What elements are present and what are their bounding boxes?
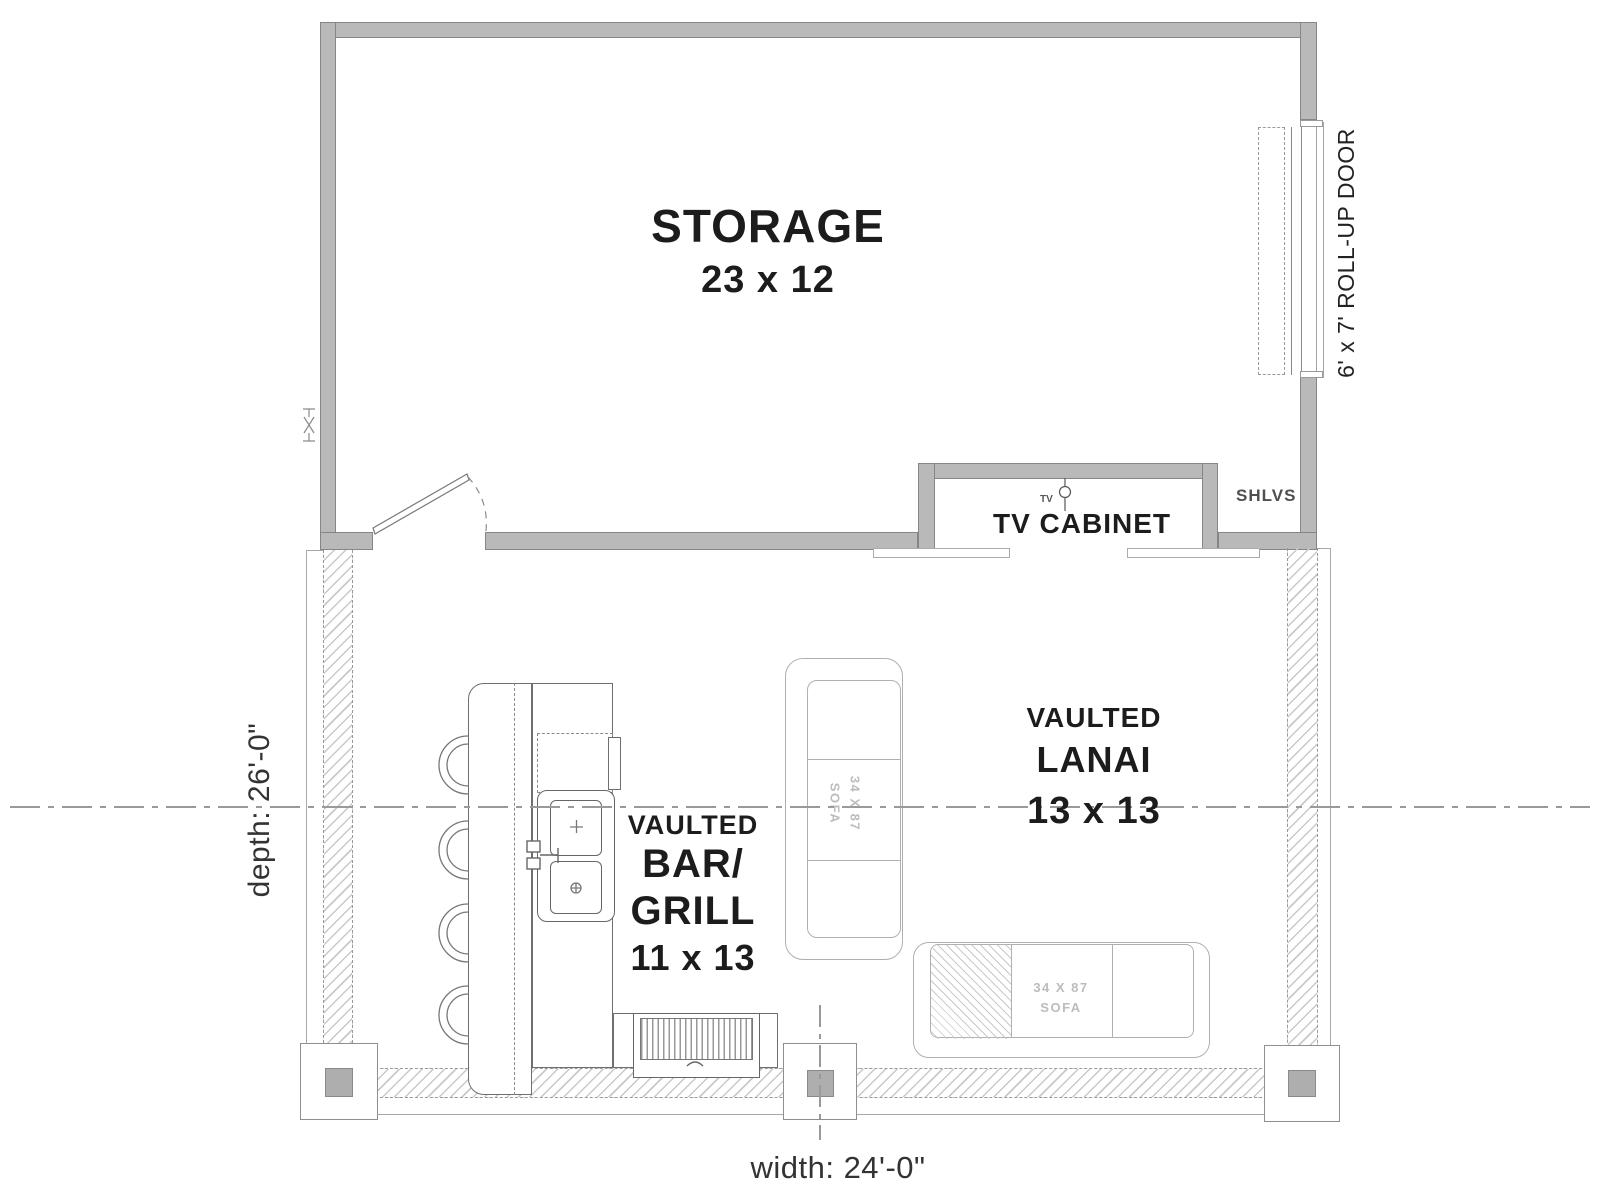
tv-outlet-icon — [1060, 478, 1071, 511]
bar-stool — [439, 821, 468, 879]
bar-grill-room-label: VAULTED BAR/ GRILL 11 x 13 — [543, 810, 843, 981]
shelves-label: SHLVS — [1236, 486, 1306, 506]
tv-cabinet-label: TV CABINET — [932, 508, 1232, 540]
door-swing-arc — [468, 477, 486, 531]
room-modifier: VAULTED — [543, 810, 843, 841]
rollup-door-label: 6' x 7' ROLL-UP DOOR — [1331, 103, 1361, 403]
tv-outlet-label: TV — [1040, 494, 1053, 505]
room-dims: 23 x 12 — [618, 258, 918, 302]
room-dims: 11 x 13 — [543, 935, 843, 981]
room-name: LANAI — [944, 740, 1244, 780]
depth-dimension-label: depth: 26'-0" — [244, 660, 276, 960]
width-dimension-label: width: 24'-0" — [688, 1150, 988, 1186]
room-modifier: VAULTED — [944, 702, 1244, 734]
grill-knob — [687, 1062, 703, 1066]
storage-room-label: STORAGE 23 x 12 — [618, 200, 918, 302]
bar-stool — [439, 986, 468, 1044]
bar-stools — [439, 736, 468, 1044]
room-name-line2: GRILL — [543, 888, 843, 935]
lanai-room-label: VAULTED LANAI 13 x 13 — [944, 702, 1244, 832]
bar-stool — [439, 736, 468, 794]
wall-fixture-icon — [303, 409, 315, 441]
floor-plan: 34 X 87 SOFA 34 X 87 SOFA — [0, 0, 1600, 1200]
bar-stool — [439, 904, 468, 962]
room-name: STORAGE — [618, 200, 918, 252]
room-dims: 13 x 13 — [944, 790, 1244, 832]
room-name-line1: BAR/ — [543, 841, 843, 888]
door-leaf — [373, 474, 469, 534]
